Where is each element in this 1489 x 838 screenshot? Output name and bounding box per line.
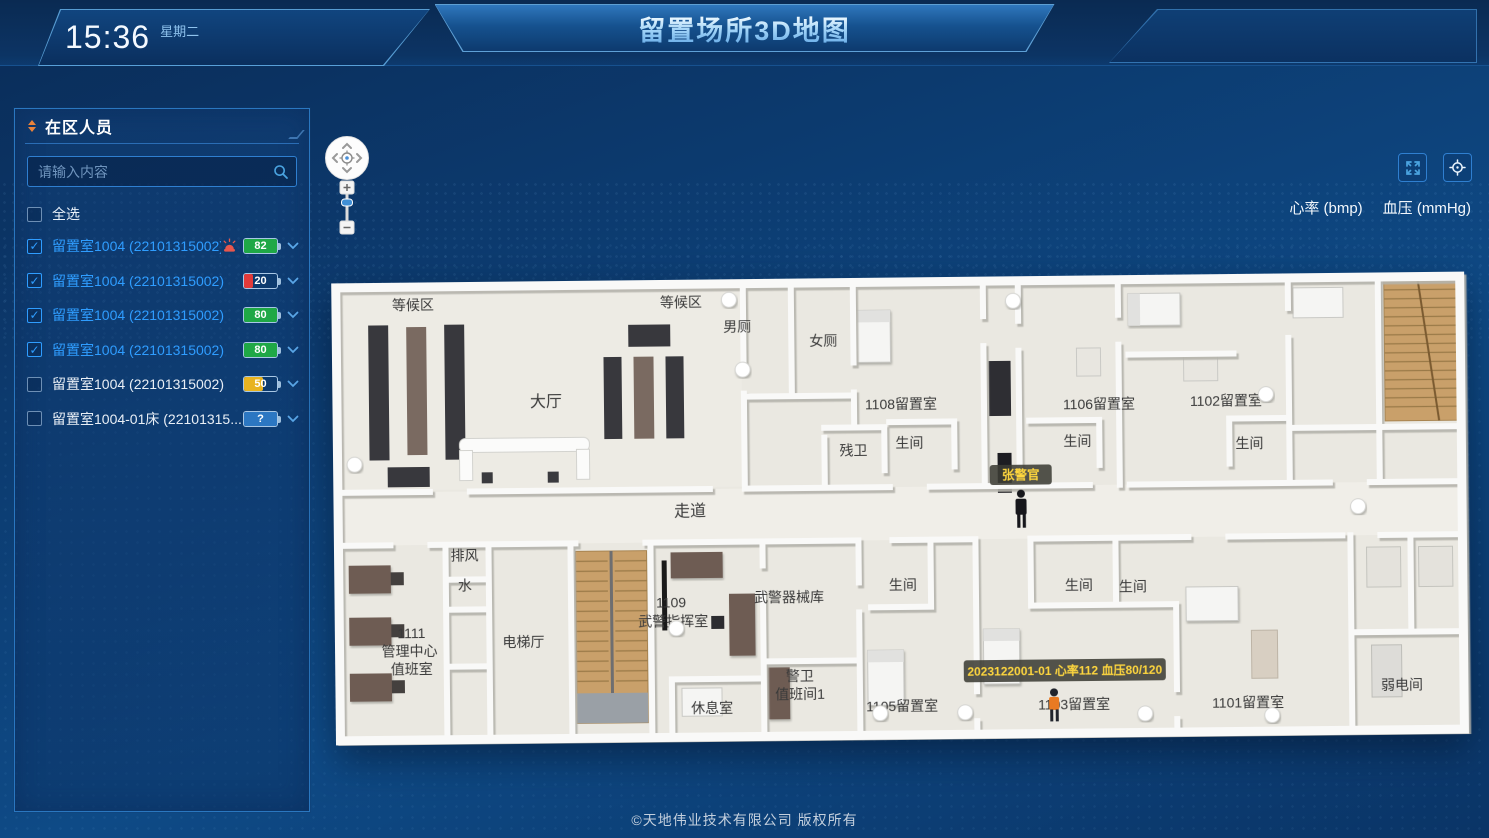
panel-title: 在区人员 [45,114,113,138]
blood-pressure-legend: 血压 (mmHg) [1383,197,1471,218]
row-checkbox[interactable]: ✓ [27,273,42,288]
zoom-out-button[interactable] [340,221,354,234]
floor-plan-3d[interactable]: 等候区等候区男厕女厕大厅1108留置室1106留置室1102留置室残卫生间生间生… [328,256,1473,746]
copyright-text: ©天地伟业技术有限公司 版权所有 [631,812,857,828]
personnel-list: ✓留置室1004 (22101315002)82✓留置室1004 (221013… [15,229,309,436]
page-title: 留置场所3D地图 [638,9,851,48]
vitals-tooltip[interactable]: 2023122001-01 心率112 血压80/120 [964,658,1166,682]
battery-badge: 50 [243,376,278,392]
chevron-down-icon[interactable] [287,346,299,354]
zoom-in-button[interactable] [340,181,354,194]
heart-rate-legend: 心率 (bmp) [1289,197,1362,218]
camera-marker[interactable] [1258,387,1273,402]
camera-marker[interactable] [1351,499,1366,514]
staircase-center [576,551,649,724]
room-label: 警卫 [786,668,814,684]
battery-badge: 80 [243,307,278,323]
chevron-down-icon[interactable] [287,415,299,423]
camera-marker[interactable] [1265,708,1280,723]
row-checkbox[interactable]: ✓ [27,239,42,254]
camera-marker[interactable] [347,457,362,472]
room-label: 休息室 [691,700,733,716]
room-label: 等候区 [660,294,702,310]
room-label: 武警器械库 [754,589,824,606]
search-input[interactable] [28,164,266,180]
officer-name-tag[interactable]: 张警官 [990,464,1052,485]
select-all-label: 全选 [52,204,80,224]
room-label: 男厕 [723,319,751,335]
battery-value: 20 [244,274,277,288]
row-label: 留置室1004 (22101315002) [52,305,243,325]
room-label: 女厕 [809,333,837,349]
row-label: 留置室1004 (22101315002) [52,271,243,291]
chevron-down-icon[interactable] [287,277,299,285]
room-label: 1108留置室 [865,396,937,413]
battery-badge: 80 [243,342,278,358]
room-label: 生间 [895,435,923,451]
title-panel: 留置场所3D地图 [435,4,1055,52]
battery-badge: ? [243,411,278,427]
fullscreen-button[interactable] [1398,153,1427,182]
divider [25,143,299,144]
copyright-bar: ©天地伟业技术有限公司 版权所有 [0,810,1489,830]
alarm-icon [221,238,238,255]
map-compass[interactable] [322,134,372,236]
room-label: 残卫 [839,442,867,458]
camera-marker[interactable] [669,621,684,636]
battery-badge: 20 [243,273,278,289]
row-label: 留置室1004 (22101315002) [52,374,243,394]
app-root: 15:36 星期二 留置场所3D地图 在区人员 [0,0,1489,838]
room-label: 值班室 [391,661,433,677]
svg-text:张警官: 张警官 [1002,467,1040,482]
room-label: 1103留置室 [1038,696,1110,713]
battery-value: 80 [244,308,277,322]
chevron-down-icon[interactable] [287,242,299,250]
room-label: 1106留置室 [1063,396,1135,413]
vitals-legend: 心率 (bmp) 血压 (mmHg) [1289,197,1471,218]
room-label: 电梯厅 [502,634,544,650]
list-item[interactable]: ✓留置室1004 (22101315002)20 [15,264,309,299]
room-label: 1111 [397,625,425,641]
room-label: 生间 [1119,578,1147,594]
list-item[interactable]: ✓留置室1004 (22101315002)50 [15,367,309,402]
row-checkbox[interactable]: ✓ [27,377,42,392]
chevron-down-icon[interactable] [287,311,299,319]
zoom-slider-handle[interactable] [342,199,353,206]
list-item[interactable]: ✓留置室1004 (22101315002)80 [15,333,309,368]
camera-marker[interactable] [873,706,888,721]
row-label: 留置室1004-01床 (22101315... [52,409,243,429]
locate-button[interactable] [1443,153,1472,182]
header-right-decoration [1109,9,1477,63]
camera-marker[interactable] [1138,706,1153,721]
battery-value: 50 [244,377,277,391]
map-toolbar [1398,153,1472,182]
personnel-panel: 在区人员 ✓ 全选 ✓留置室1004 (22101315002)82✓留置室10… [14,108,310,812]
camera-marker[interactable] [1005,293,1020,308]
list-item[interactable]: ✓留置室1004 (22101315002)82 [15,229,309,264]
room-label: 管理中心 [381,643,437,660]
row-checkbox[interactable]: ✓ [27,411,42,426]
select-all-row[interactable]: ✓ 全选 [27,203,297,225]
room-label: 值班间1 [775,686,825,703]
room-label: 1109 [656,594,686,610]
room-label: 等候区 [392,297,434,313]
clock-time: 15:36 [65,19,150,56]
corner-decoration-icon [288,130,305,139]
clock-weekday: 星期二 [160,21,199,40]
list-item[interactable]: ✓留置室1004-01床 (22101315...? [15,402,309,437]
search-box[interactable] [27,156,297,187]
battery-badge: 82 [243,238,278,254]
camera-marker[interactable] [735,362,750,377]
battery-value: ? [244,412,277,426]
room-label: 大厅 [530,393,562,411]
chevron-down-icon[interactable] [287,380,299,388]
room-label: 走道 [674,502,706,520]
room-label: 生间 [1235,435,1263,451]
svg-text:2023122001-01 心率112 血压80/120: 2023122001-01 心率112 血压80/120 [967,662,1162,679]
clock-panel: 15:36 星期二 [38,9,430,66]
camera-marker[interactable] [721,292,736,307]
camera-marker[interactable] [958,705,973,720]
room-label: 排风 [450,547,478,563]
battery-value: 80 [244,343,277,357]
room-label: 生间 [1065,577,1093,593]
collapse-icon[interactable] [27,119,37,133]
staircase-right [1384,280,1457,421]
row-checkbox[interactable]: ✓ [27,308,42,323]
room-label: 水 [458,577,472,593]
room-label: 生间 [1063,433,1091,449]
row-label: 留置室1004 (22101315002) [52,340,243,360]
list-item[interactable]: ✓留置室1004 (22101315002)80 [15,298,309,333]
room-label: 生间 [889,577,917,593]
top-bar: 15:36 星期二 留置场所3D地图 [0,0,1489,66]
row-checkbox[interactable]: ✓ [27,342,42,357]
battery-value: 82 [244,239,277,253]
search-icon[interactable] [266,164,296,180]
select-all-checkbox[interactable]: ✓ [27,207,42,222]
room-label: 1102留置室 [1190,392,1262,409]
row-label: 留置室1004 (22101315002) [52,236,221,256]
room-label: 弱电间 [1381,677,1423,693]
